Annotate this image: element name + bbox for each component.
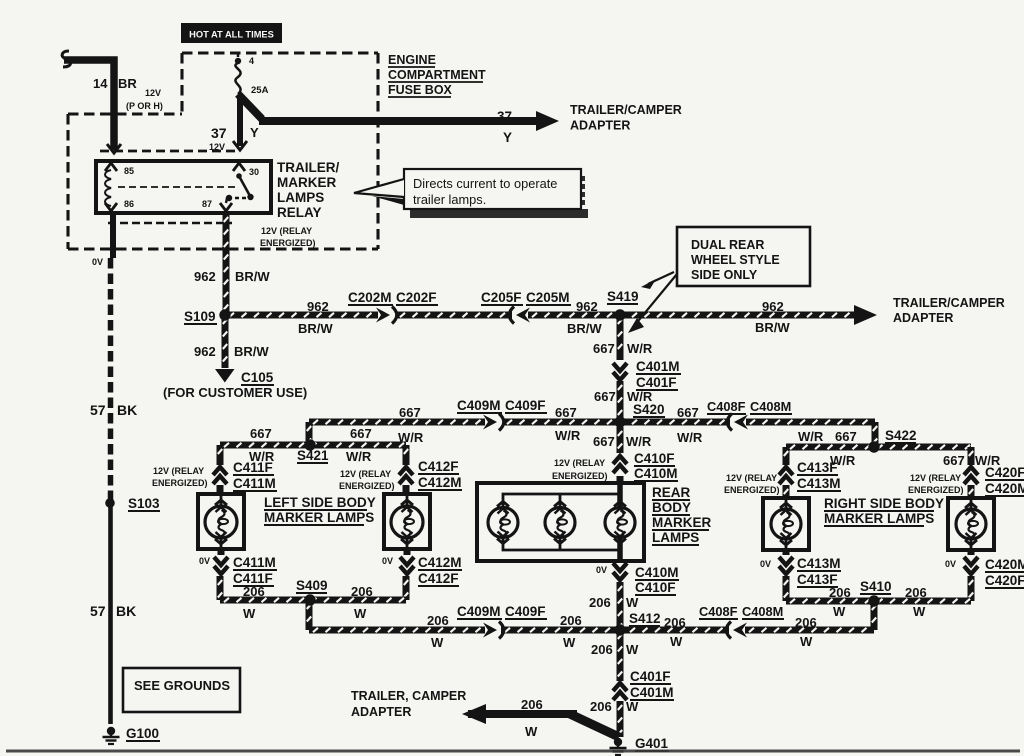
svg-text:W/R: W/R <box>627 341 653 356</box>
svg-text:30: 30 <box>249 167 259 177</box>
svg-text:667: 667 <box>593 434 615 449</box>
svg-text:W/R: W/R <box>677 430 703 445</box>
svg-text:WHEEL STYLE: WHEEL STYLE <box>691 253 780 267</box>
svg-text:C412M: C412M <box>418 475 462 490</box>
svg-text:C205M: C205M <box>526 290 570 305</box>
svg-text:C409F: C409F <box>505 604 546 619</box>
svg-text:667: 667 <box>555 405 577 420</box>
svg-text:667: 667 <box>250 426 272 441</box>
svg-text:C105: C105 <box>241 370 274 385</box>
svg-text:12V (RELAY: 12V (RELAY <box>261 226 312 236</box>
svg-text:12V (RELAY: 12V (RELAY <box>910 473 961 483</box>
svg-text:S420: S420 <box>633 402 665 417</box>
svg-text:12V (RELAY: 12V (RELAY <box>153 466 204 476</box>
svg-text:BR: BR <box>118 76 137 91</box>
svg-text:86: 86 <box>124 199 134 209</box>
svg-text:BODY: BODY <box>652 500 691 515</box>
svg-text:ENERGIZED): ENERGIZED) <box>908 485 964 495</box>
svg-text:TRAILER/CAMPER: TRAILER/CAMPER <box>570 103 682 117</box>
svg-text:962: 962 <box>194 344 216 359</box>
svg-text:S421: S421 <box>297 448 329 463</box>
svg-text:C401F: C401F <box>630 669 671 684</box>
svg-text:C412F: C412F <box>418 459 459 474</box>
svg-text:C408F: C408F <box>699 604 738 619</box>
svg-text:206: 206 <box>560 613 582 628</box>
svg-text:G100: G100 <box>126 726 159 741</box>
svg-text:C401M: C401M <box>636 359 680 374</box>
svg-text:C411F: C411F <box>233 460 273 475</box>
svg-text:667: 667 <box>593 341 615 356</box>
svg-text:0V: 0V <box>760 559 771 569</box>
svg-text:0V: 0V <box>945 559 956 569</box>
svg-text:C408F: C408F <box>707 399 746 414</box>
svg-text:BR/W: BR/W <box>234 344 269 359</box>
svg-text:206: 206 <box>351 584 373 599</box>
svg-text:SIDE ONLY: SIDE ONLY <box>691 268 758 282</box>
svg-text:ADAPTER: ADAPTER <box>351 705 411 719</box>
svg-text:RELAY: RELAY <box>277 205 322 220</box>
svg-text:BR/W: BR/W <box>567 321 602 336</box>
svg-text:962: 962 <box>762 299 784 314</box>
svg-text:12V: 12V <box>209 142 225 152</box>
svg-text:TRAILER/CAMPER: TRAILER/CAMPER <box>893 296 1005 310</box>
svg-text:57: 57 <box>90 603 106 619</box>
svg-text:W: W <box>670 634 683 649</box>
svg-text:87: 87 <box>202 199 212 209</box>
svg-text:C409F: C409F <box>505 398 546 413</box>
svg-text:BR/W: BR/W <box>235 269 270 284</box>
svg-text:4: 4 <box>249 56 254 66</box>
svg-text:FUSE BOX: FUSE BOX <box>388 83 453 97</box>
svg-text:C401M: C401M <box>630 685 674 700</box>
svg-text:TRAILER/: TRAILER/ <box>277 160 339 175</box>
svg-text:BR/W: BR/W <box>755 320 790 335</box>
svg-text:C411M: C411M <box>233 555 276 570</box>
svg-text:206: 206 <box>521 697 543 712</box>
svg-text:667: 667 <box>677 405 699 420</box>
svg-text:206: 206 <box>591 642 613 657</box>
svg-text:C410F: C410F <box>635 580 676 595</box>
svg-text:S412: S412 <box>629 611 661 626</box>
svg-text:C412F: C412F <box>418 571 459 586</box>
svg-text:W: W <box>626 595 639 610</box>
svg-text:C413M: C413M <box>797 476 841 491</box>
svg-text:C411M: C411M <box>233 476 276 491</box>
svg-text:0V: 0V <box>199 556 210 566</box>
svg-text:C409M: C409M <box>457 604 501 619</box>
svg-text:W: W <box>563 635 576 650</box>
svg-text:S109: S109 <box>184 309 216 324</box>
svg-text:W: W <box>913 604 926 619</box>
svg-text:MARKER LAMPS: MARKER LAMPS <box>264 510 374 525</box>
svg-text:C413F: C413F <box>797 460 838 475</box>
svg-text:W: W <box>525 724 538 739</box>
svg-text:14: 14 <box>93 76 108 91</box>
svg-text:C420F: C420F <box>985 573 1024 588</box>
svg-text:W/R: W/R <box>798 429 824 444</box>
svg-text:C408M: C408M <box>750 399 791 414</box>
svg-text:667: 667 <box>594 389 616 404</box>
svg-text:W/R: W/R <box>346 449 372 464</box>
svg-text:BK: BK <box>117 402 137 418</box>
svg-text:BR/W: BR/W <box>298 321 333 336</box>
svg-text:C205F: C205F <box>481 290 522 305</box>
svg-text:206: 206 <box>664 615 686 630</box>
svg-text:ADAPTER: ADAPTER <box>893 311 953 325</box>
svg-text:C202M: C202M <box>348 290 392 305</box>
svg-text:S419: S419 <box>607 289 639 304</box>
svg-text:37: 37 <box>497 109 512 124</box>
svg-text:C420M: C420M <box>985 481 1024 496</box>
svg-text:Y: Y <box>503 130 512 145</box>
svg-text:BK: BK <box>116 603 136 619</box>
svg-text:LAMPS: LAMPS <box>277 190 324 205</box>
svg-text:ENERGIZED): ENERGIZED) <box>724 485 780 495</box>
svg-text:C412M: C412M <box>418 555 462 570</box>
svg-text:C202F: C202F <box>396 290 437 305</box>
svg-text:W/R: W/R <box>626 434 652 449</box>
svg-text:57: 57 <box>90 402 106 418</box>
svg-text:C408M: C408M <box>742 604 783 619</box>
svg-text:0V: 0V <box>596 565 607 575</box>
svg-text:COMPARTMENT: COMPARTMENT <box>388 68 486 82</box>
svg-text:ENERGIZED): ENERGIZED) <box>260 238 316 248</box>
svg-text:W: W <box>800 634 813 649</box>
svg-text:LAMPS: LAMPS <box>652 530 699 545</box>
svg-text:C410M: C410M <box>635 565 679 580</box>
svg-text:HOT AT ALL TIMES: HOT AT ALL TIMES <box>189 30 274 40</box>
svg-text:37: 37 <box>211 125 227 141</box>
svg-text:S410: S410 <box>860 579 892 594</box>
svg-text:SEE GROUNDS: SEE GROUNDS <box>134 678 230 693</box>
svg-text:962: 962 <box>194 269 216 284</box>
svg-text:12V: 12V <box>145 88 161 98</box>
svg-text:0V: 0V <box>382 556 393 566</box>
svg-text:W: W <box>354 606 367 621</box>
svg-text:S422: S422 <box>885 428 917 443</box>
svg-text:W/R: W/R <box>555 428 581 443</box>
svg-text:667: 667 <box>350 426 372 441</box>
svg-text:C413M: C413M <box>797 556 841 571</box>
svg-text:12V (RELAY: 12V (RELAY <box>340 469 391 479</box>
svg-text:W: W <box>833 604 846 619</box>
svg-text:MARKER: MARKER <box>652 515 711 530</box>
svg-text:DUAL REAR: DUAL REAR <box>691 238 764 252</box>
svg-text:206: 206 <box>905 585 927 600</box>
svg-text:C401F: C401F <box>636 375 677 390</box>
svg-text:206: 206 <box>589 595 611 610</box>
svg-text:962: 962 <box>307 299 329 314</box>
svg-text:206: 206 <box>590 699 612 714</box>
svg-text:Y: Y <box>250 125 259 140</box>
svg-text:(P OR H): (P OR H) <box>126 101 163 111</box>
svg-text:ENGINE: ENGINE <box>388 53 436 67</box>
svg-text:W: W <box>431 635 444 650</box>
svg-text:ENERGIZED): ENERGIZED) <box>152 478 208 488</box>
svg-text:12V (RELAY: 12V (RELAY <box>554 458 605 468</box>
svg-text:12V (RELAY: 12V (RELAY <box>726 473 777 483</box>
svg-text:206: 206 <box>243 584 265 599</box>
svg-text:(FOR CUSTOMER USE): (FOR CUSTOMER USE) <box>163 385 307 400</box>
svg-text:0V: 0V <box>92 257 103 267</box>
svg-text:RIGHT SIDE BODY: RIGHT SIDE BODY <box>824 496 944 511</box>
svg-text:667: 667 <box>399 405 421 420</box>
svg-text:C410F: C410F <box>634 451 675 466</box>
svg-text:trailer lamps.: trailer lamps. <box>413 192 486 207</box>
svg-text:667: 667 <box>835 429 857 444</box>
svg-text:LEFT SIDE BODY: LEFT SIDE BODY <box>264 495 376 510</box>
svg-text:TRAILER, CAMPER: TRAILER, CAMPER <box>351 689 466 703</box>
svg-text:S409: S409 <box>296 578 328 593</box>
svg-text:MARKER: MARKER <box>277 175 336 190</box>
svg-text:S103: S103 <box>128 496 160 511</box>
svg-text:206: 206 <box>795 615 817 630</box>
svg-text:C420F: C420F <box>985 465 1024 480</box>
svg-text:85: 85 <box>124 166 134 176</box>
svg-text:REAR: REAR <box>652 485 691 500</box>
svg-text:ENERGIZED): ENERGIZED) <box>339 481 395 491</box>
svg-text:25A: 25A <box>251 85 269 96</box>
svg-text:C409M: C409M <box>457 398 501 413</box>
svg-text:206: 206 <box>829 585 851 600</box>
svg-text:MARKER LAMPS: MARKER LAMPS <box>824 511 934 526</box>
svg-text:206: 206 <box>427 613 449 628</box>
svg-text:ENERGIZED): ENERGIZED) <box>552 471 608 481</box>
svg-text:Directs current to operate: Directs current to operate <box>413 176 557 191</box>
svg-text:W: W <box>243 606 256 621</box>
svg-text:C410M: C410M <box>634 466 678 481</box>
svg-text:G401: G401 <box>635 736 669 751</box>
svg-text:W: W <box>626 642 639 657</box>
svg-text:667: 667 <box>943 453 965 468</box>
svg-text:C420M: C420M <box>985 557 1024 572</box>
svg-text:ADAPTER: ADAPTER <box>570 119 630 133</box>
svg-text:962: 962 <box>576 299 598 314</box>
svg-text:W: W <box>626 699 639 714</box>
